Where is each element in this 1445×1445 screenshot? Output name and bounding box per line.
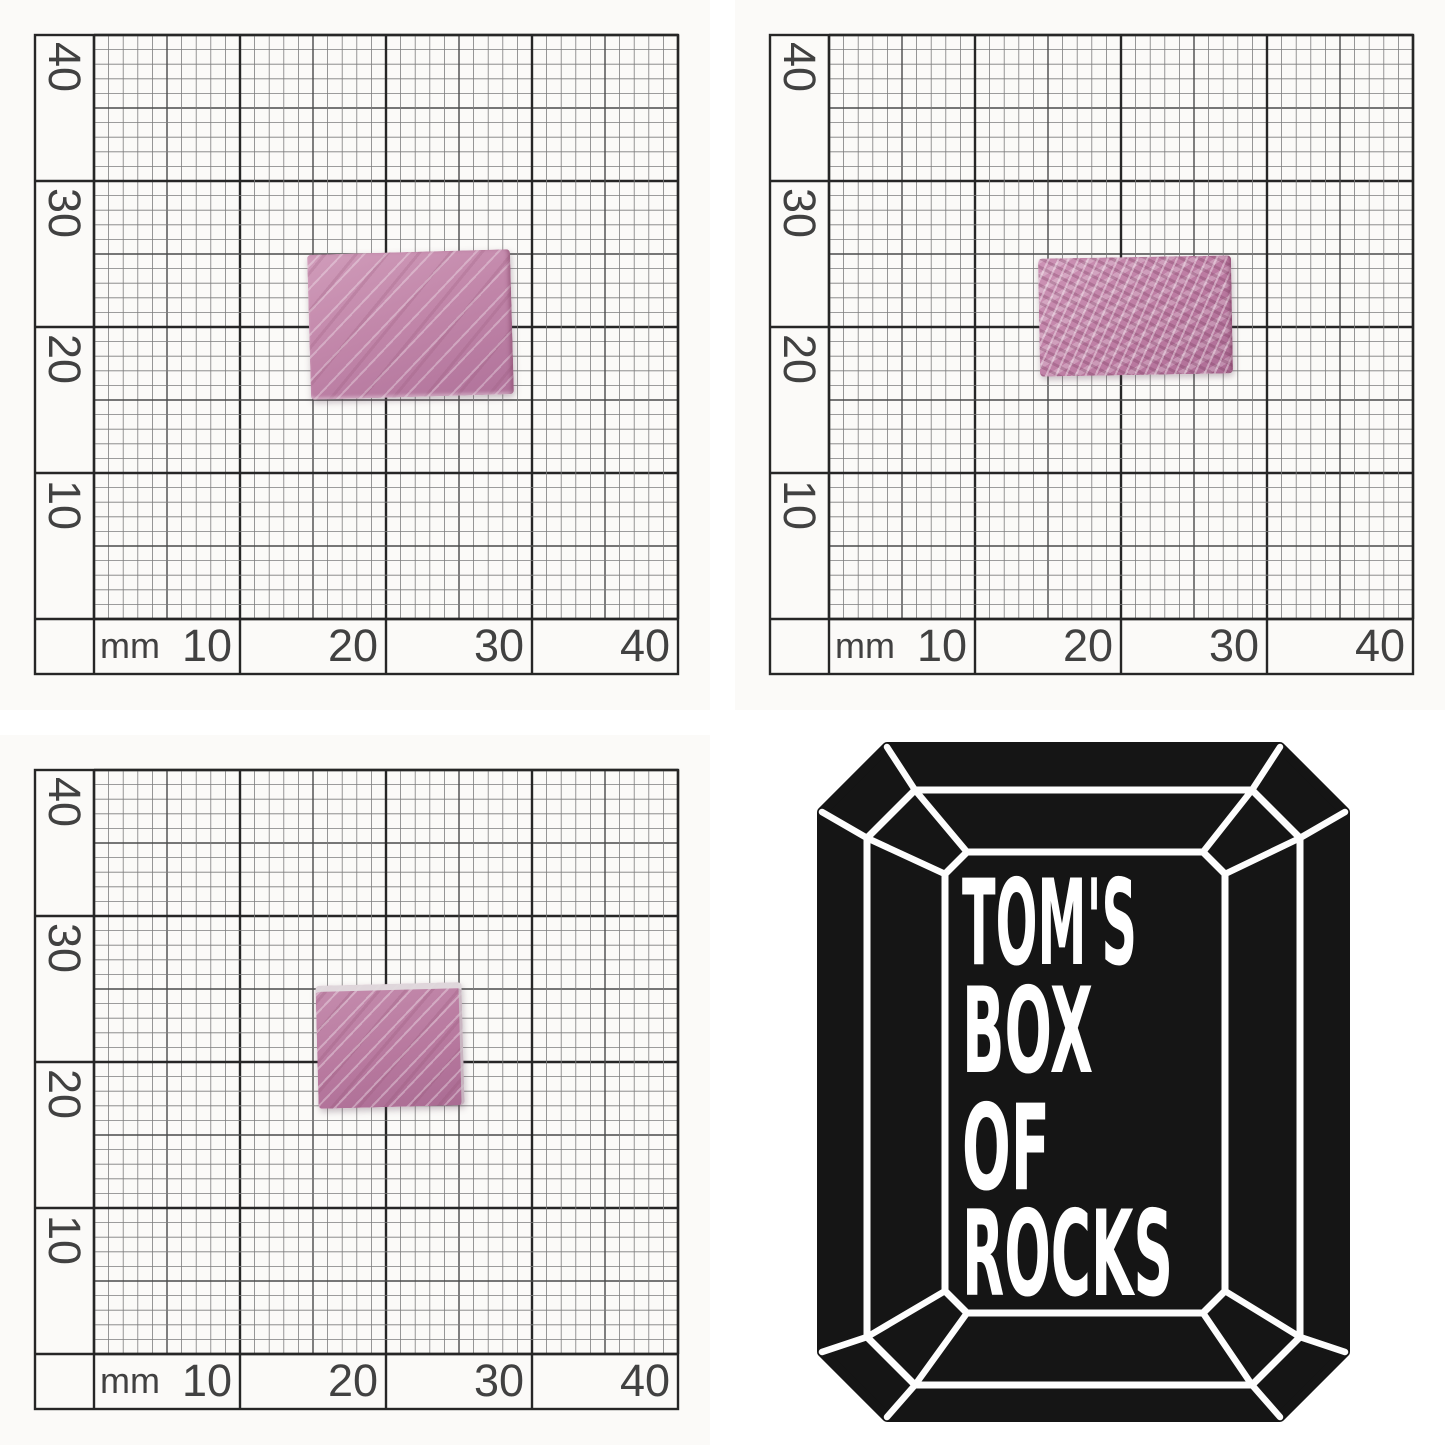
x-axis-label-30: 30 <box>386 619 524 674</box>
x-axis-label-40: 40 <box>532 619 670 674</box>
rock-specimen-end-view <box>315 982 464 1109</box>
y-axis-label-20: 20 <box>770 334 829 484</box>
x-axis-label-30: 30 <box>386 1354 524 1409</box>
emerald-cut-gem-icon: TOM'S BOX OF ROCKS <box>735 735 1445 1445</box>
x-axis-label-20: 20 <box>975 619 1113 674</box>
x-axis-label-40: 40 <box>532 1354 670 1409</box>
product-photo-collage: 40 30 20 10 mm 10 20 30 40 40 30 20 10 m… <box>0 0 1445 1445</box>
y-axis-label-30: 30 <box>770 188 829 338</box>
x-axis-label-40: 40 <box>1267 619 1405 674</box>
toms-box-of-rocks-logo: TOM'S BOX OF ROCKS <box>735 735 1445 1445</box>
y-axis-label-20: 20 <box>35 1069 94 1219</box>
specimen-photo-top-right: 40 30 20 10 mm 10 20 30 40 <box>735 0 1445 710</box>
y-axis-label-10: 10 <box>35 480 94 630</box>
x-axis-label-30: 30 <box>1121 619 1259 674</box>
y-axis-label-40: 40 <box>35 42 94 192</box>
x-axis-label-10: 10 <box>94 619 232 674</box>
x-axis-label-10: 10 <box>829 619 967 674</box>
rock-specimen-rough-face <box>1038 255 1233 376</box>
y-axis-label-10: 10 <box>770 480 829 630</box>
x-axis-label-20: 20 <box>240 619 378 674</box>
y-axis-label-40: 40 <box>35 777 94 927</box>
logo-line-rocks: ROCKS <box>962 1186 1173 1324</box>
y-axis-label-10: 10 <box>35 1215 94 1365</box>
x-axis-label-20: 20 <box>240 1354 378 1409</box>
specimen-photo-bottom-left: 40 30 20 10 mm 10 20 30 40 <box>0 735 710 1445</box>
y-axis-label-30: 30 <box>35 188 94 338</box>
y-axis-label-30: 30 <box>35 923 94 1073</box>
x-axis-label-10: 10 <box>94 1354 232 1409</box>
y-axis-label-40: 40 <box>770 42 829 192</box>
rock-specimen-polished-face <box>307 249 514 400</box>
specimen-photo-top-left: 40 30 20 10 mm 10 20 30 40 <box>0 0 710 710</box>
y-axis-label-20: 20 <box>35 334 94 484</box>
